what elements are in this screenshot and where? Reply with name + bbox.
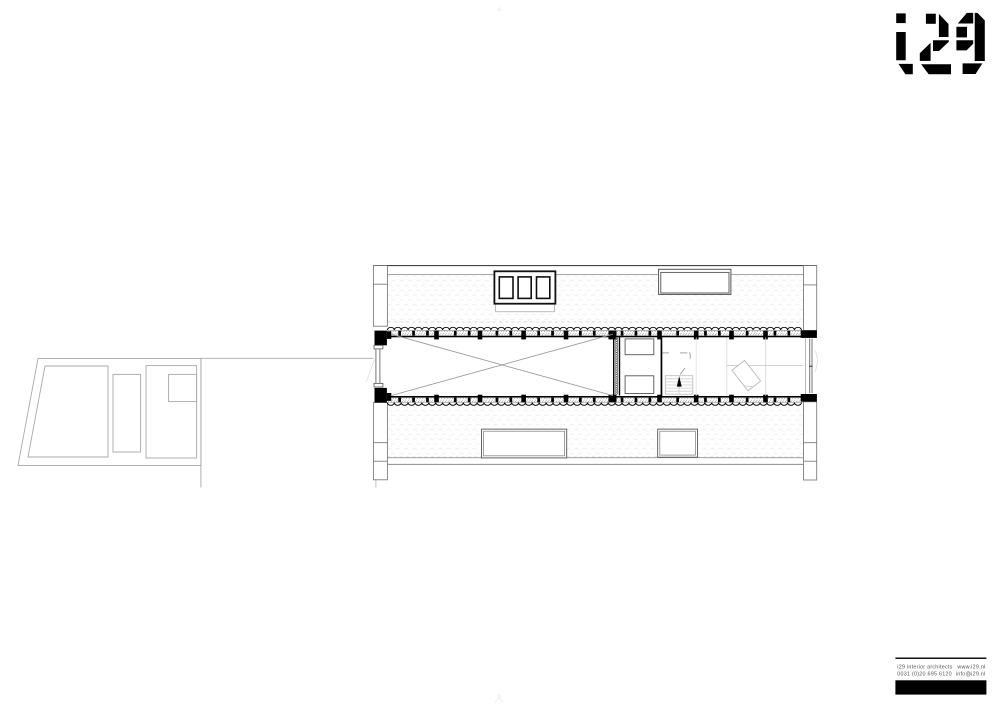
svg-text:www.i29.nl: www.i29.nl [956,665,985,671]
svg-text:i29 interior architects: i29 interior architects [897,665,952,671]
svg-text:info@i29.nl: info@i29.nl [956,671,986,677]
svg-text:0031 (0)20 695 6120: 0031 (0)20 695 6120 [897,671,952,677]
